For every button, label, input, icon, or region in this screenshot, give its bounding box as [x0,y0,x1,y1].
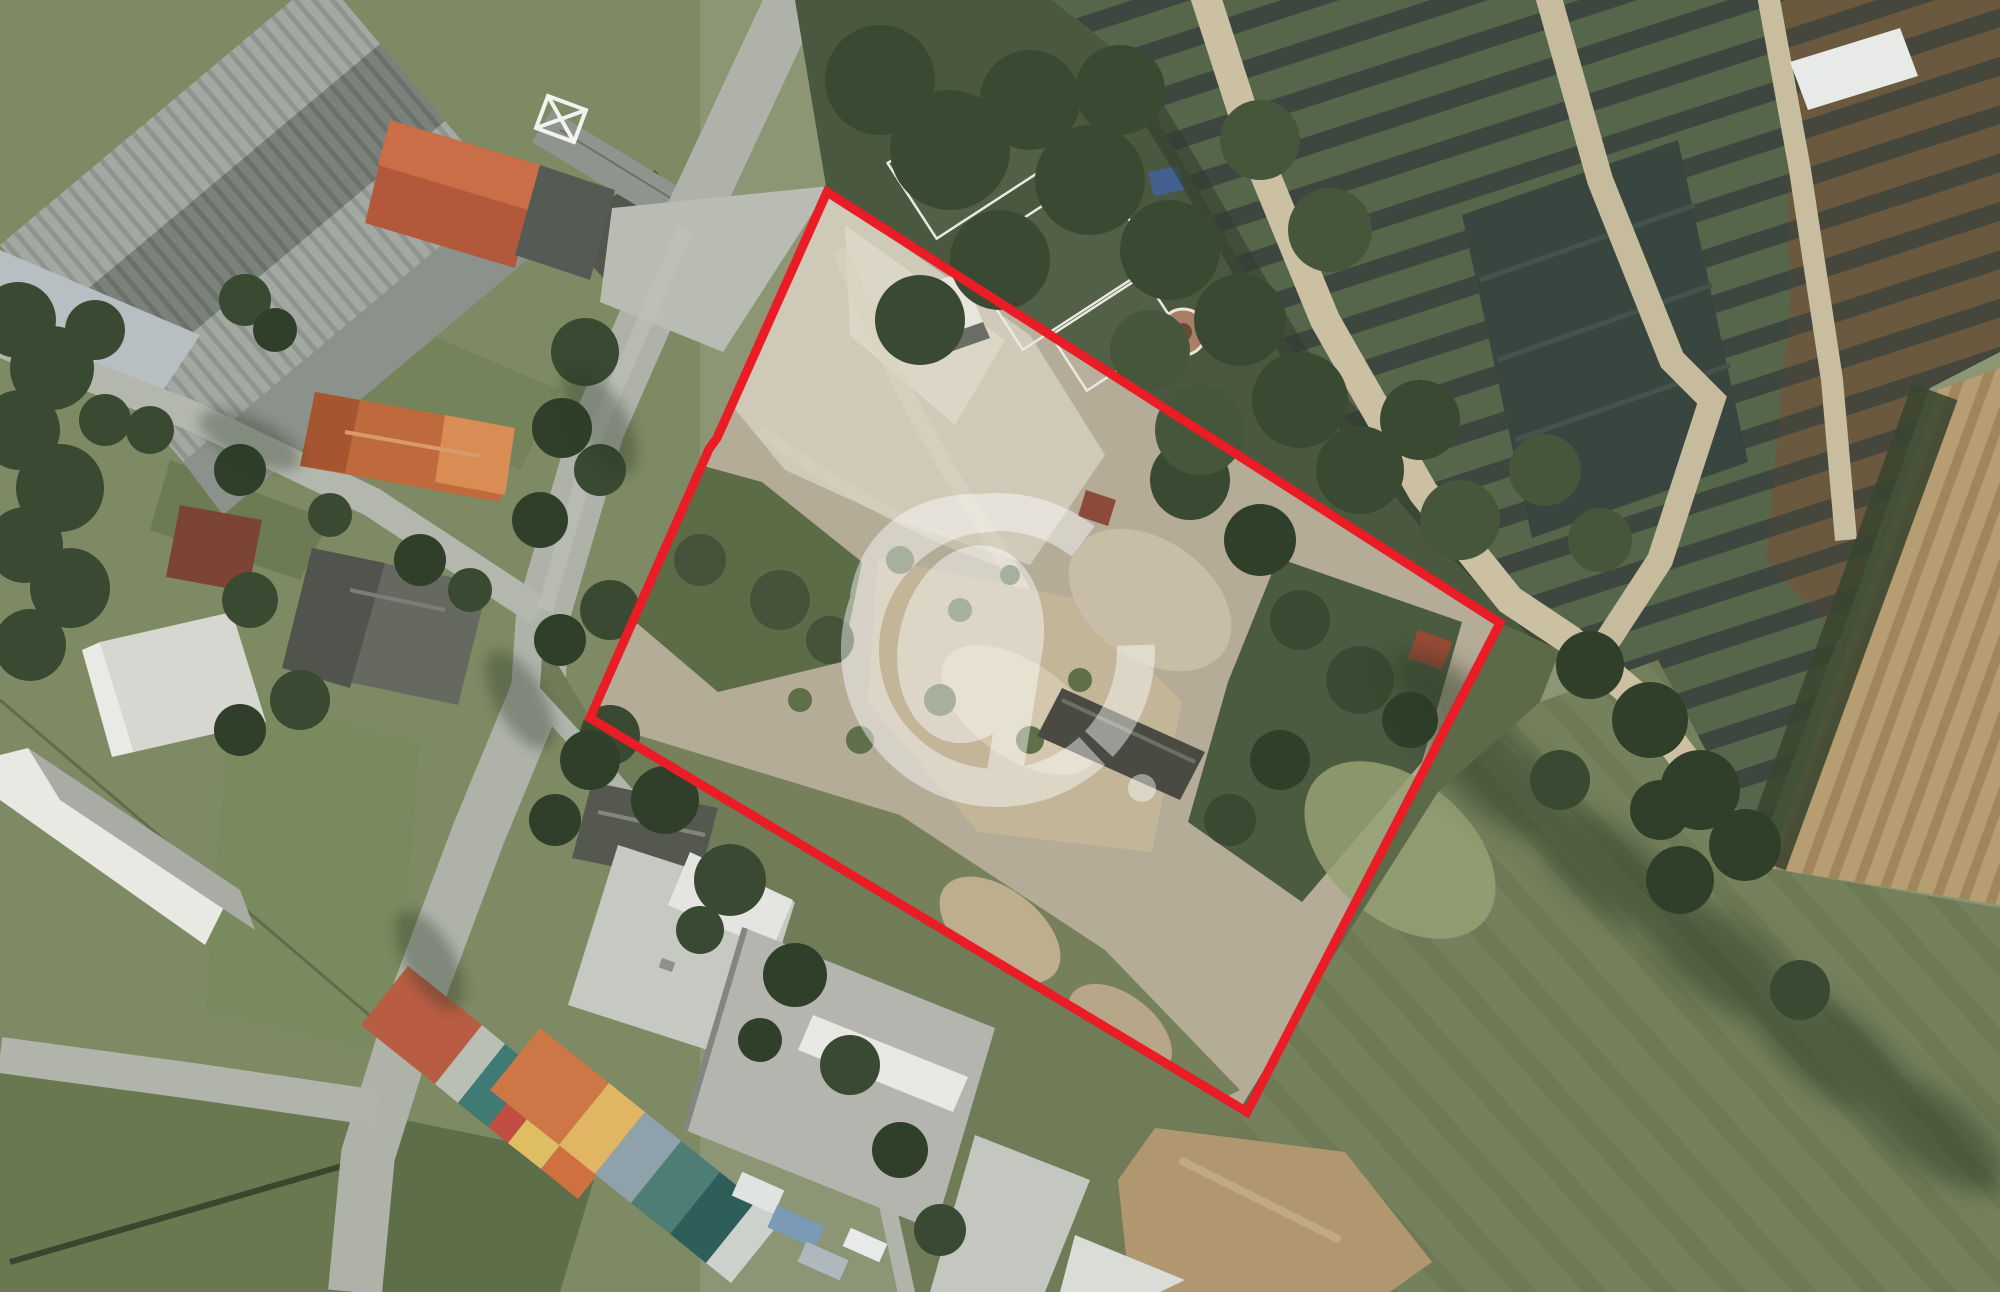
aerial-photo [0,0,2000,1292]
aerial-screenshot [0,0,2000,1292]
watermark-dot [1128,774,1156,802]
